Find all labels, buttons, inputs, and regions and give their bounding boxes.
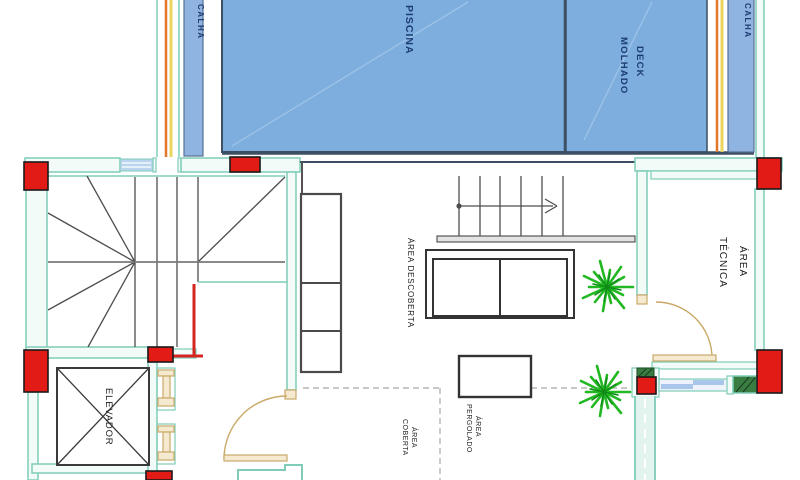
area-tecnica-label-line1: ÁREA: [737, 246, 750, 277]
door1-swing-arc: [224, 396, 287, 459]
deck-label-line2: MOLHADO: [618, 37, 629, 94]
duct-stem: [163, 376, 170, 398]
area-tecnica: ÁREA TÉCNICA: [632, 171, 764, 480]
column-top-center: [230, 157, 260, 172]
elevador-label: ELEVADOR: [103, 388, 114, 445]
tecnica-left-wall: [637, 171, 647, 295]
floor-plan-canvas: PISCINA DECK MOLHADO CALHA CALHA: [0, 0, 800, 480]
stair-room-right-wall: [287, 172, 296, 390]
duct-cap: [158, 398, 174, 406]
column-window-corner: [637, 377, 656, 394]
duct-cap: [158, 452, 174, 460]
plants: [580, 261, 633, 416]
column-top-left: [24, 162, 48, 190]
hatch-column-large: [733, 376, 757, 393]
duct-cap: [158, 426, 174, 432]
plant-top-view: [583, 261, 633, 311]
calha-left-stripe: CALHA: [157, 0, 205, 157]
bottom-wall-corner: [238, 465, 302, 480]
stair-room-left-wall: [26, 175, 47, 352]
tecnica-bottom-wall: [652, 362, 758, 369]
calha-right-label: CALHA: [743, 3, 752, 39]
deck-label-line1: DECK: [634, 46, 645, 78]
duct-stem: [163, 432, 170, 452]
column-bottom-center: [146, 471, 172, 480]
plant-top-view-2: [580, 366, 630, 416]
stair-landing-bar: [437, 236, 635, 242]
stair-arrow-start-dot: [456, 203, 461, 208]
pool: [222, 0, 566, 152]
area-tecnica-label-line2: TÉCNICA: [717, 237, 730, 288]
window-pane-right: [693, 380, 724, 385]
area-coberta-label-line1: ÁREA: [410, 427, 419, 448]
duct-symbols: [157, 368, 175, 464]
calha-left-label: CALHA: [196, 4, 205, 40]
area-pergolado-label-line1: ÁREA: [474, 416, 483, 437]
door1-leaf: [224, 455, 287, 461]
tecnica-right-wall: [755, 189, 764, 350]
duct-cap: [158, 370, 174, 376]
wall-stub: [153, 158, 156, 172]
center-area: ÁREA DESCOBERTA ÁREA COBERTA ÁREA PERGOL…: [224, 176, 635, 480]
door2-swing-arc: [656, 302, 712, 358]
column-mid-left: [24, 350, 48, 392]
area-pergolado-label-line2: PERGOLADO: [465, 404, 472, 453]
area-coberta-label-line2: COBERTA: [401, 419, 408, 456]
column-top-right: [757, 158, 781, 189]
door1-frame: [285, 390, 296, 399]
column-stair-bottom: [148, 347, 173, 362]
elevator: ELEVADOR: [28, 362, 175, 480]
calha-right-stripe: CALHA: [717, 0, 764, 158]
right-outer-wall-top: [756, 0, 764, 158]
door2-frame: [637, 295, 647, 304]
floor-plan-drawing: PISCINA DECK MOLHADO CALHA CALHA: [0, 0, 800, 480]
piscina-label: PISCINA: [403, 5, 415, 55]
column-bottom-right: [757, 350, 782, 393]
small-table: [459, 356, 531, 397]
door2-leaf: [653, 355, 716, 361]
window-pane-left: [661, 384, 693, 389]
area-descoberta-label: ÁREA DESCOBERTA: [406, 238, 415, 328]
window-mullion: [727, 376, 733, 394]
tecnica-top-inner-wall: [651, 171, 757, 179]
pool-section: PISCINA DECK MOLHADO: [222, 0, 754, 153]
window-top-left: [120, 159, 153, 171]
straight-stairs: [459, 176, 563, 236]
